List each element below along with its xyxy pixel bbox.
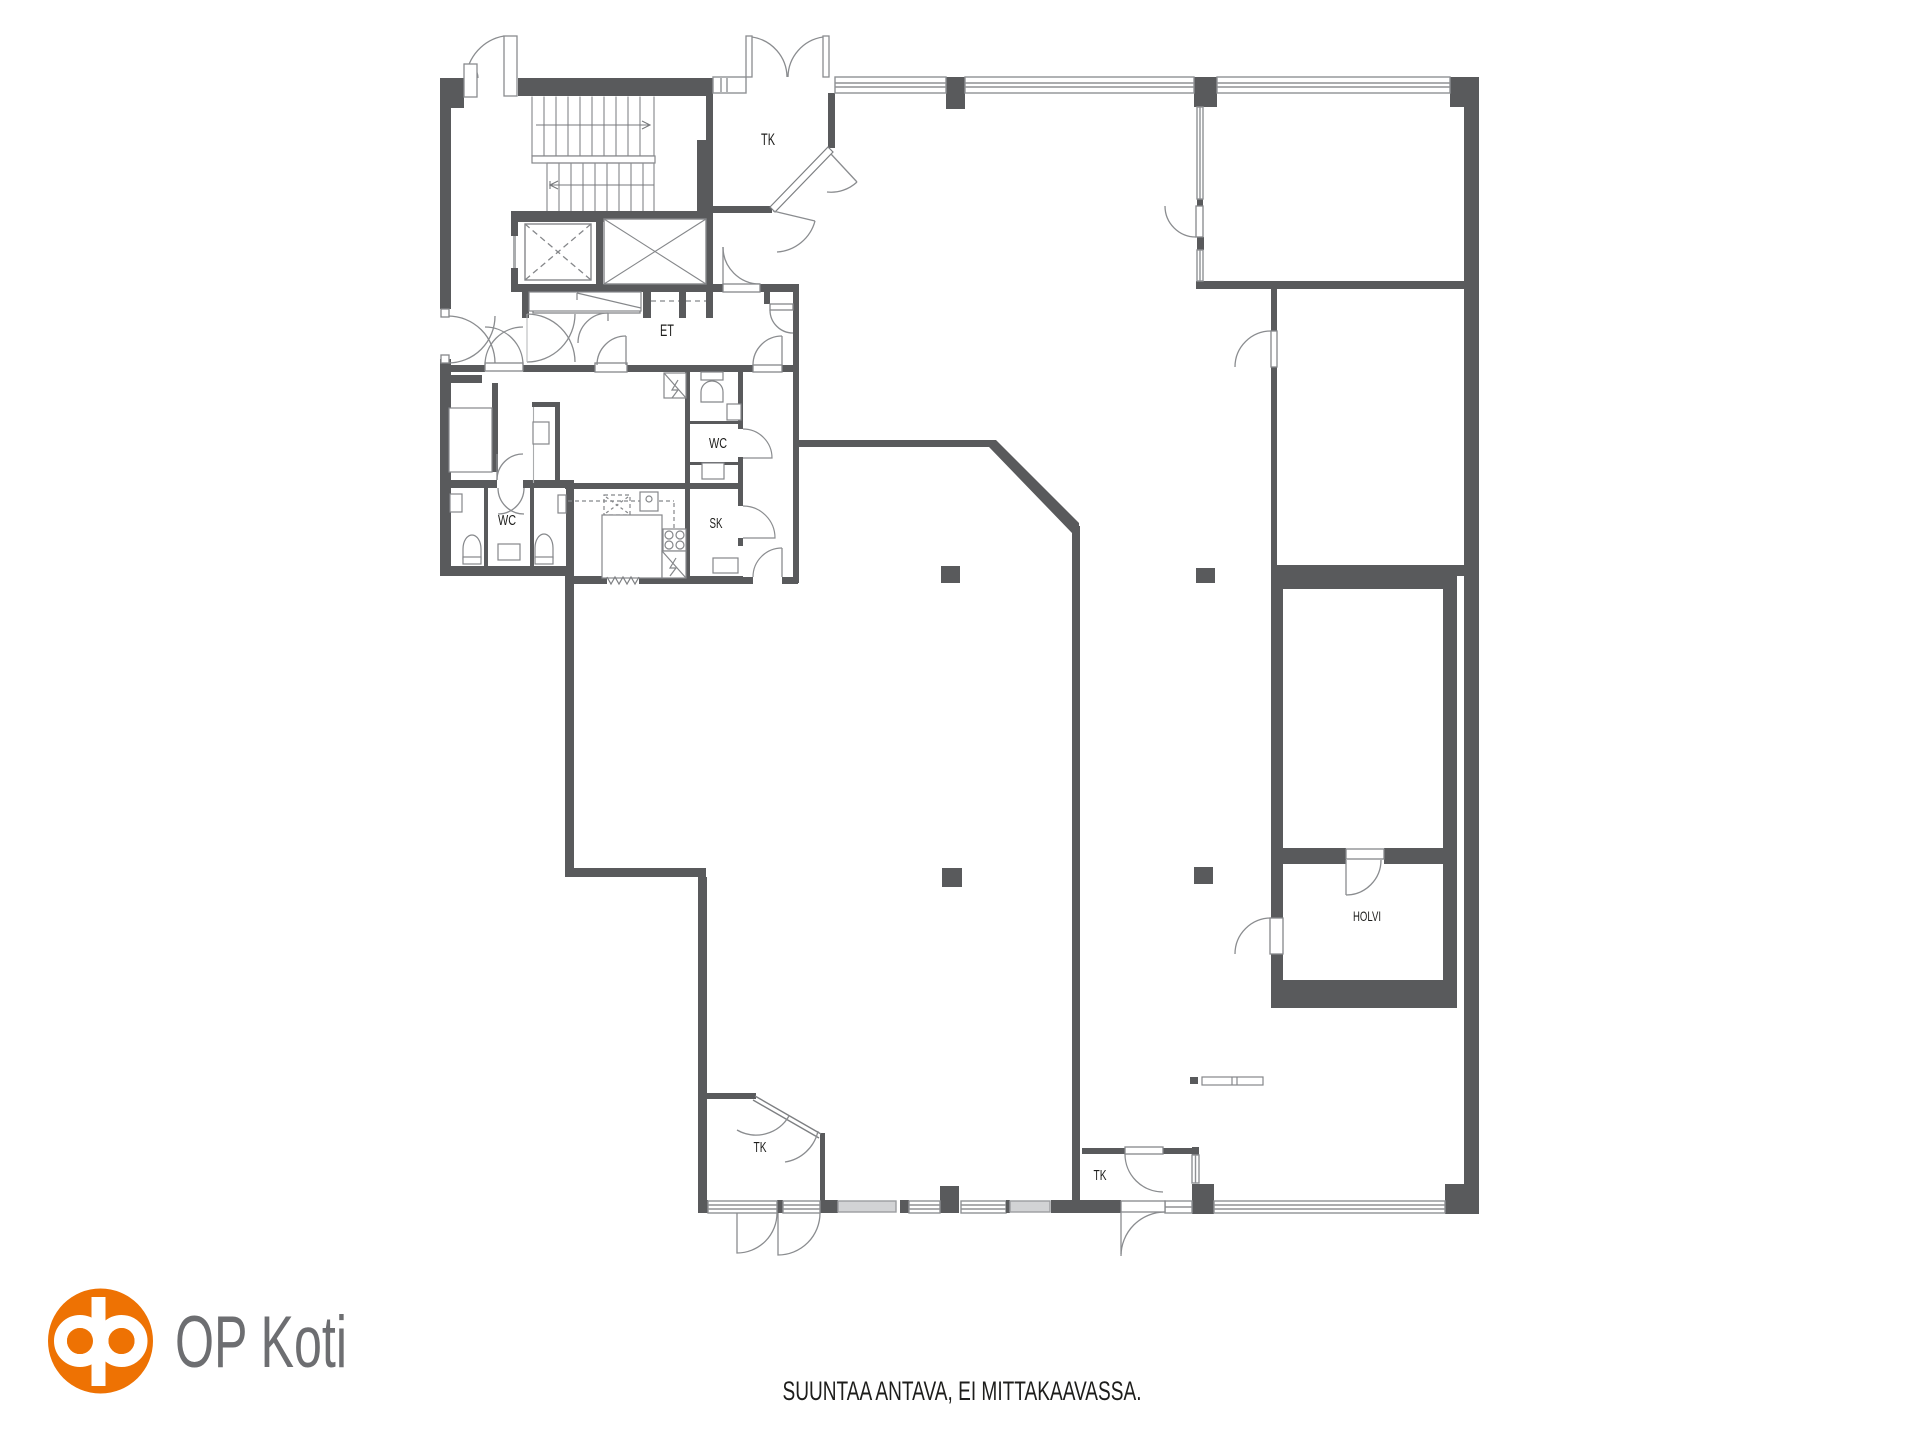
svg-text:TK: TK bbox=[754, 1139, 767, 1156]
svg-text:OP Koti: OP Koti bbox=[175, 1302, 347, 1383]
svg-text:WC: WC bbox=[498, 512, 516, 529]
svg-text:WC: WC bbox=[709, 435, 727, 452]
svg-text:HOLVI: HOLVI bbox=[1353, 908, 1381, 924]
svg-text:TK: TK bbox=[1094, 1167, 1107, 1184]
svg-text:ET: ET bbox=[660, 321, 674, 340]
svg-text:SUUNTAA ANTAVA, EI MITTAKAAVAS: SUUNTAA ANTAVA, EI MITTAKAAVASSA. bbox=[783, 1376, 1142, 1406]
svg-text:TK: TK bbox=[761, 130, 775, 149]
svg-text:SK: SK bbox=[710, 515, 723, 532]
